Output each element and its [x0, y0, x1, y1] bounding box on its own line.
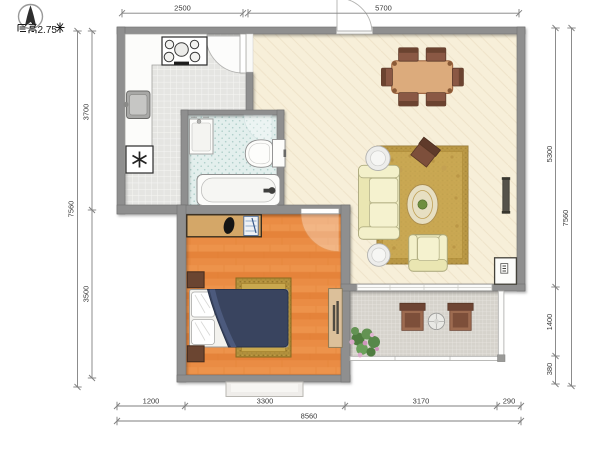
svg-text:5700: 5700	[375, 4, 392, 13]
svg-text:1200: 1200	[143, 396, 160, 405]
svg-text:3300: 3300	[257, 396, 274, 405]
svg-text:7560: 7560	[561, 210, 570, 227]
svg-text:290: 290	[503, 396, 516, 405]
svg-text:1400: 1400	[545, 314, 554, 331]
svg-text:3700: 3700	[82, 104, 91, 121]
svg-text:380: 380	[545, 363, 554, 376]
svg-text:5300: 5300	[545, 146, 554, 163]
svg-text:3170: 3170	[413, 396, 430, 405]
svg-text:8560: 8560	[301, 411, 318, 420]
svg-text:3500: 3500	[82, 286, 91, 303]
svg-text:2500: 2500	[174, 4, 191, 13]
svg-text:2.75: 2.75	[38, 25, 58, 36]
svg-text:7560: 7560	[67, 201, 76, 218]
